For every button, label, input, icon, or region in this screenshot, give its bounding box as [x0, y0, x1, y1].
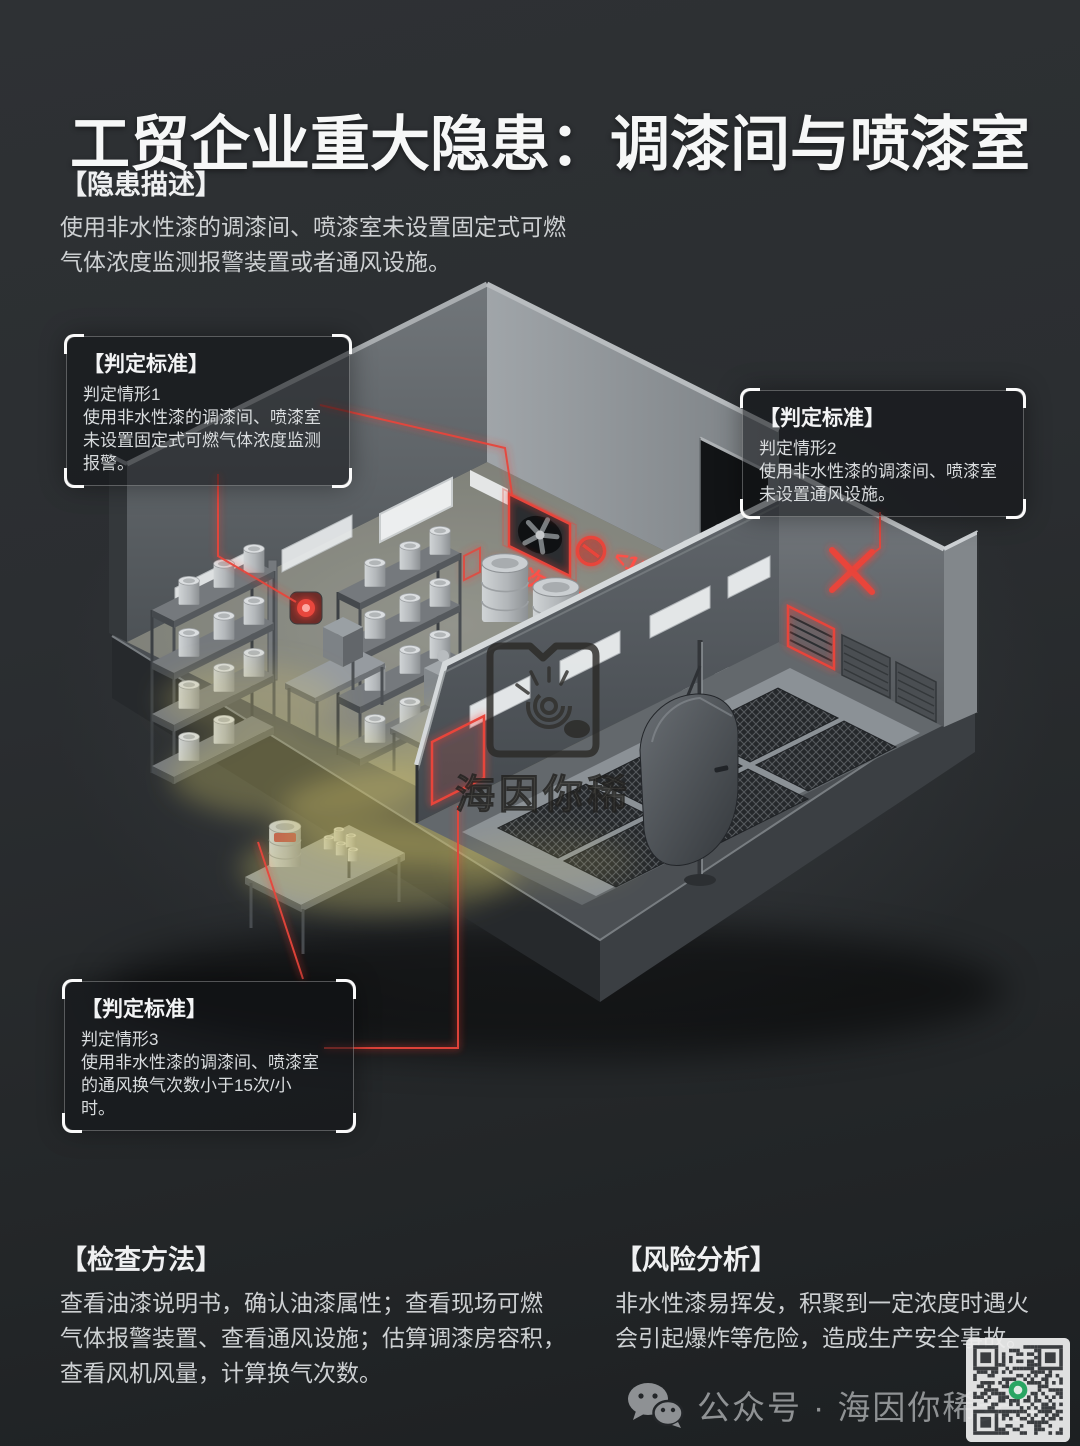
hazard-description-section: 【隐患描述】 使用非水性漆的调漆间、喷漆室未设置固定式可燃 气体浓度监测报警装置…: [60, 163, 660, 280]
risk-line: 非水性漆易挥发，积聚到一定浓度时遇火: [615, 1286, 1045, 1321]
corner-bracket: [62, 979, 82, 999]
callout-line: 的通风换气次数小于15次/小: [81, 1074, 339, 1097]
corner-bracket: [64, 468, 84, 488]
inspection-body: 查看油漆说明书，确认油漆属性；查看现场可燃 气体报警装置、查看通风设施；估算调漆…: [60, 1286, 600, 1391]
hazard-body: 使用非水性漆的调漆间、喷漆室未设置固定式可燃 气体浓度监测报警装置或者通风设施。: [60, 210, 660, 280]
callout-heading: 【判定标准】: [83, 348, 335, 378]
callout-line: 使用非水性漆的调漆间、喷漆室: [81, 1051, 339, 1074]
corner-bracket: [332, 468, 352, 488]
qr-code: [966, 1338, 1070, 1442]
inspection-heading: 【检查方法】: [60, 1238, 600, 1277]
gas-alarm-light: [290, 592, 322, 624]
corner-bracket: [62, 1113, 82, 1133]
corner-bracket: [332, 334, 352, 354]
callout-line: 未设置通风设施。: [759, 483, 1009, 506]
judgment-callout-3: 【判定标准】 判定情形3 使用非水性漆的调漆间、喷漆室 的通风换气次数小于15次…: [64, 981, 354, 1131]
corner-bracket: [336, 1113, 356, 1133]
callout-line: 时。: [81, 1097, 339, 1120]
hazard-line: 气体浓度监测报警装置或者通风设施。: [60, 245, 660, 280]
callout-heading: 【判定标准】: [81, 993, 339, 1023]
corner-bracket: [1006, 499, 1026, 519]
callout-heading: 【判定标准】: [759, 402, 1009, 432]
right-outer-wall: [944, 532, 978, 727]
callout-line: 判定情形2: [759, 437, 1009, 460]
judgment-callout-1: 【判定标准】 判定情形1 使用非水性漆的调漆间、喷漆室 未设置固定式可燃气体浓度…: [66, 336, 350, 486]
callout-line: 判定情形3: [81, 1028, 339, 1051]
wechat-icon: [626, 1382, 684, 1428]
callout-line: 报警。: [83, 452, 335, 475]
inspection-line: 查看风机风量，计算换气次数。: [60, 1356, 600, 1391]
inspection-line: 气体报警装置、查看通风设施；估算调漆房容积，: [60, 1321, 600, 1356]
corner-bracket: [336, 979, 356, 999]
hazard-heading: 【隐患描述】: [60, 163, 660, 202]
hazard-line: 使用非水性漆的调漆间、喷漆室未设置固定式可燃: [60, 210, 660, 245]
poster: <15次/小时 <15次/小时: [0, 0, 1080, 1446]
corner-bracket: [740, 499, 760, 519]
no-ventilation-icon: [578, 538, 605, 565]
judgment-callout-2: 【判定标准】 判定情形2 使用非水性漆的调漆间、喷漆室 未设置通风设施。: [742, 390, 1024, 517]
vapor-spill: [445, 834, 635, 890]
callout-line: 使用非水性漆的调漆间、喷漆室: [83, 406, 335, 429]
corner-bracket: [1006, 388, 1026, 408]
corner-bracket: [64, 334, 84, 354]
callout-line: 未设置固定式可燃气体浓度监测: [83, 429, 335, 452]
callout-line: 使用非水性漆的调漆间、喷漆室: [759, 460, 1009, 483]
watermark-text: 海因你稀: [455, 773, 631, 817]
inspection-line: 查看油漆说明书，确认油漆属性；查看现场可燃: [60, 1286, 600, 1321]
risk-heading: 【风险分析】: [615, 1238, 1045, 1277]
inspection-method-section: 【检查方法】 查看油漆说明书，确认油漆属性；查看现场可燃 气体报警装置、查看通风…: [60, 1238, 600, 1391]
corner-bracket: [740, 388, 760, 408]
callout-line: 判定情形1: [83, 383, 335, 406]
